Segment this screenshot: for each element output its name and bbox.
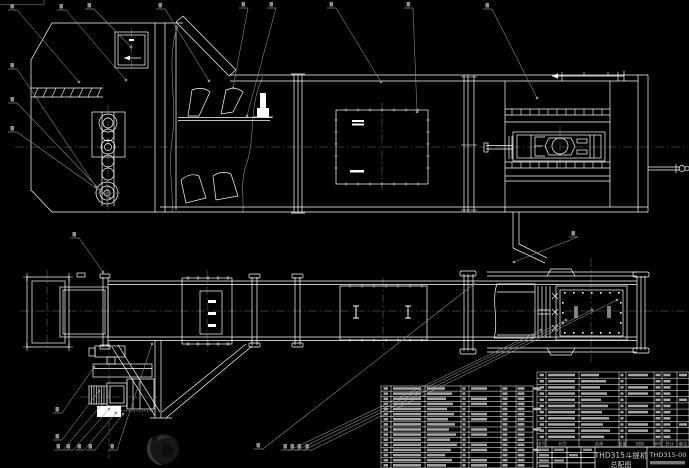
svg-text:代号: 代号 [558, 440, 567, 447]
title-block: THD315斗提机 总配图 THD315-00 [537, 447, 689, 468]
plan-head-box [23, 273, 110, 351]
svg-text:材料: 材料 [636, 440, 645, 447]
svg-text:备注: 备注 [679, 440, 688, 447]
company-line [650, 461, 685, 464]
bolt-dots [562, 292, 622, 334]
elevation-view [15, 16, 689, 263]
svg-text:名称: 名称 [595, 440, 604, 447]
head-section [31, 23, 183, 212]
assembly-drawing: 序号代号名称数量材料单件总计备注 THD315斗提机 总配图 THD315-00 [0, 0, 689, 468]
discharge-chute [176, 16, 236, 76]
casing-flanges-elevation [291, 74, 477, 213]
svg-text:单件: 单件 [654, 440, 663, 447]
plan-flanges [249, 271, 649, 354]
drawing-type: 总配图 [611, 460, 632, 468]
svg-text:总计: 总计 [665, 440, 674, 447]
svg-text:数量: 数量 [618, 440, 627, 447]
sheet-frame-corner [0, 0, 44, 5]
drawing-number: THD315-00 [649, 451, 687, 459]
bucket-strand [171, 25, 273, 212]
cad-viewport: 序号代号名称数量材料单件总计备注 THD315斗提机 总配图 THD315-00 [0, 0, 689, 468]
casing-shell [160, 75, 648, 212]
inspection-door-plan [340, 285, 427, 342]
tail-drive-section [484, 71, 689, 263]
plan-tail-assembly [487, 269, 637, 355]
drawing-title: THD315斗提机 [594, 450, 648, 460]
watermark-stamp [147, 434, 179, 465]
svg-text:序号: 序号 [537, 440, 546, 447]
plan-view [20, 258, 688, 459]
part-balloon-leaders [8, 2, 618, 450]
